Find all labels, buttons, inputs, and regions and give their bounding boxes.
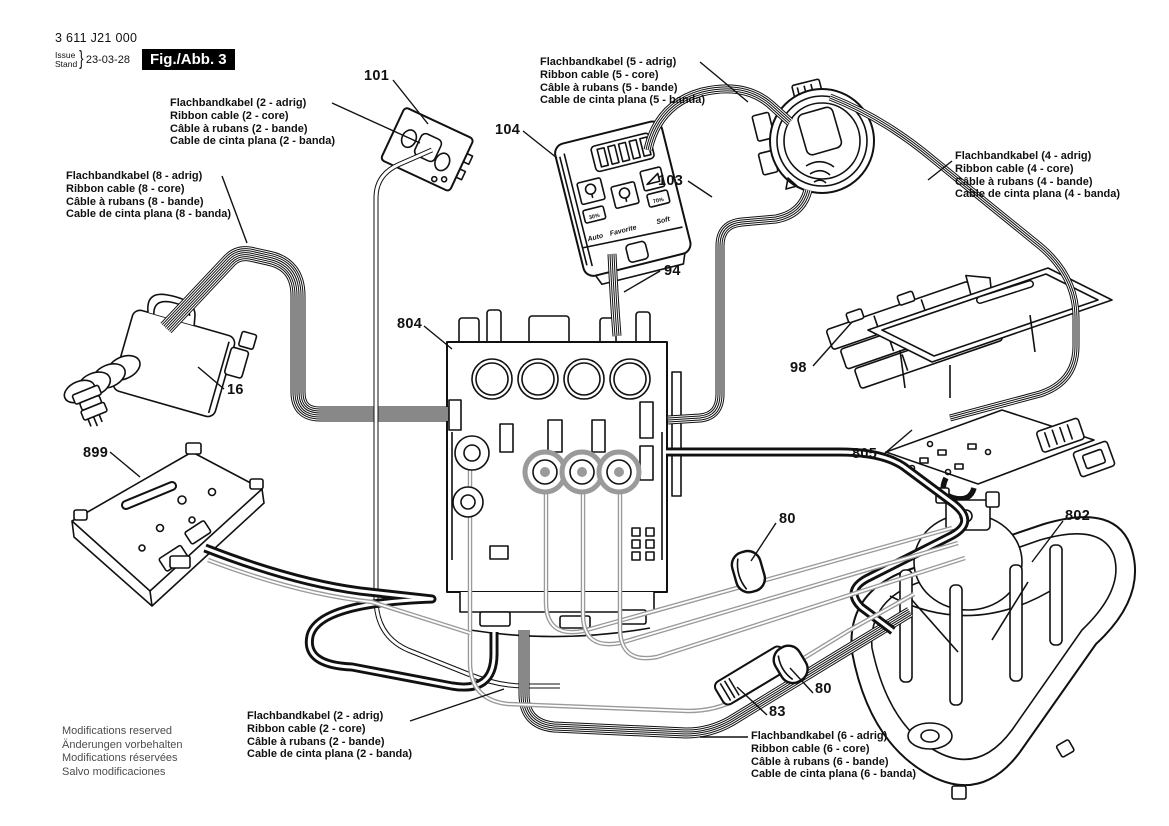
label-ribbon-5-core: Flachbandkabel (5 - adrig)Ribbon cable (…	[540, 56, 705, 107]
knob	[599, 452, 639, 492]
callout-104: 104	[495, 122, 520, 138]
title-block: 3 611 J21 000 Issue Stand } 23-03-28 Fig…	[55, 31, 235, 71]
label-ribbon-2-core-top: Flachbandkabel (2 - adrig)Ribbon cable (…	[170, 97, 335, 148]
callout-802: 802	[1065, 508, 1090, 524]
callout-101: 101	[364, 68, 389, 84]
callout-94: 94	[664, 263, 681, 279]
label-ribbon-8-core: Flachbandkabel (8 - adrig)Ribbon cable (…	[66, 170, 231, 221]
callout-80-lower: 80	[815, 681, 832, 697]
part-899-mounting-plate	[72, 443, 264, 606]
diagram-page: 30% 70% Auto Favorite Soft	[0, 0, 1169, 826]
part-805-pcb	[886, 410, 1094, 499]
callout-899: 899	[83, 445, 108, 461]
callout-16: 16	[227, 382, 244, 398]
document-number: 3 611 J21 000	[55, 31, 235, 45]
label-ribbon-2-core-bottom: Flachbandkabel (2 - adrig)Ribbon cable (…	[247, 710, 412, 761]
knob	[562, 452, 602, 492]
issue-label: Issue Stand	[55, 51, 77, 69]
callout-83: 83	[769, 704, 786, 720]
brace-glyph: }	[79, 48, 83, 71]
callout-98: 98	[790, 360, 807, 376]
issue-date: 23-03-28	[86, 54, 130, 66]
label-ribbon-4-core: Flachbandkabel (4 - adrig)Ribbon cable (…	[955, 150, 1120, 201]
knob	[525, 452, 565, 492]
callout-804: 804	[397, 316, 422, 332]
label-ribbon-6-core: Flachbandkabel (6 - adrig)Ribbon cable (…	[751, 730, 916, 781]
figure-number-badge: Fig./Abb. 3	[142, 49, 235, 70]
callout-80-upper: 80	[779, 511, 796, 527]
part-16-valve	[52, 273, 261, 468]
callout-103: 103	[658, 173, 683, 189]
callout-805: 805	[852, 446, 877, 462]
modifications-notice: Modifications reserved Änderungen vorbeh…	[62, 725, 182, 779]
